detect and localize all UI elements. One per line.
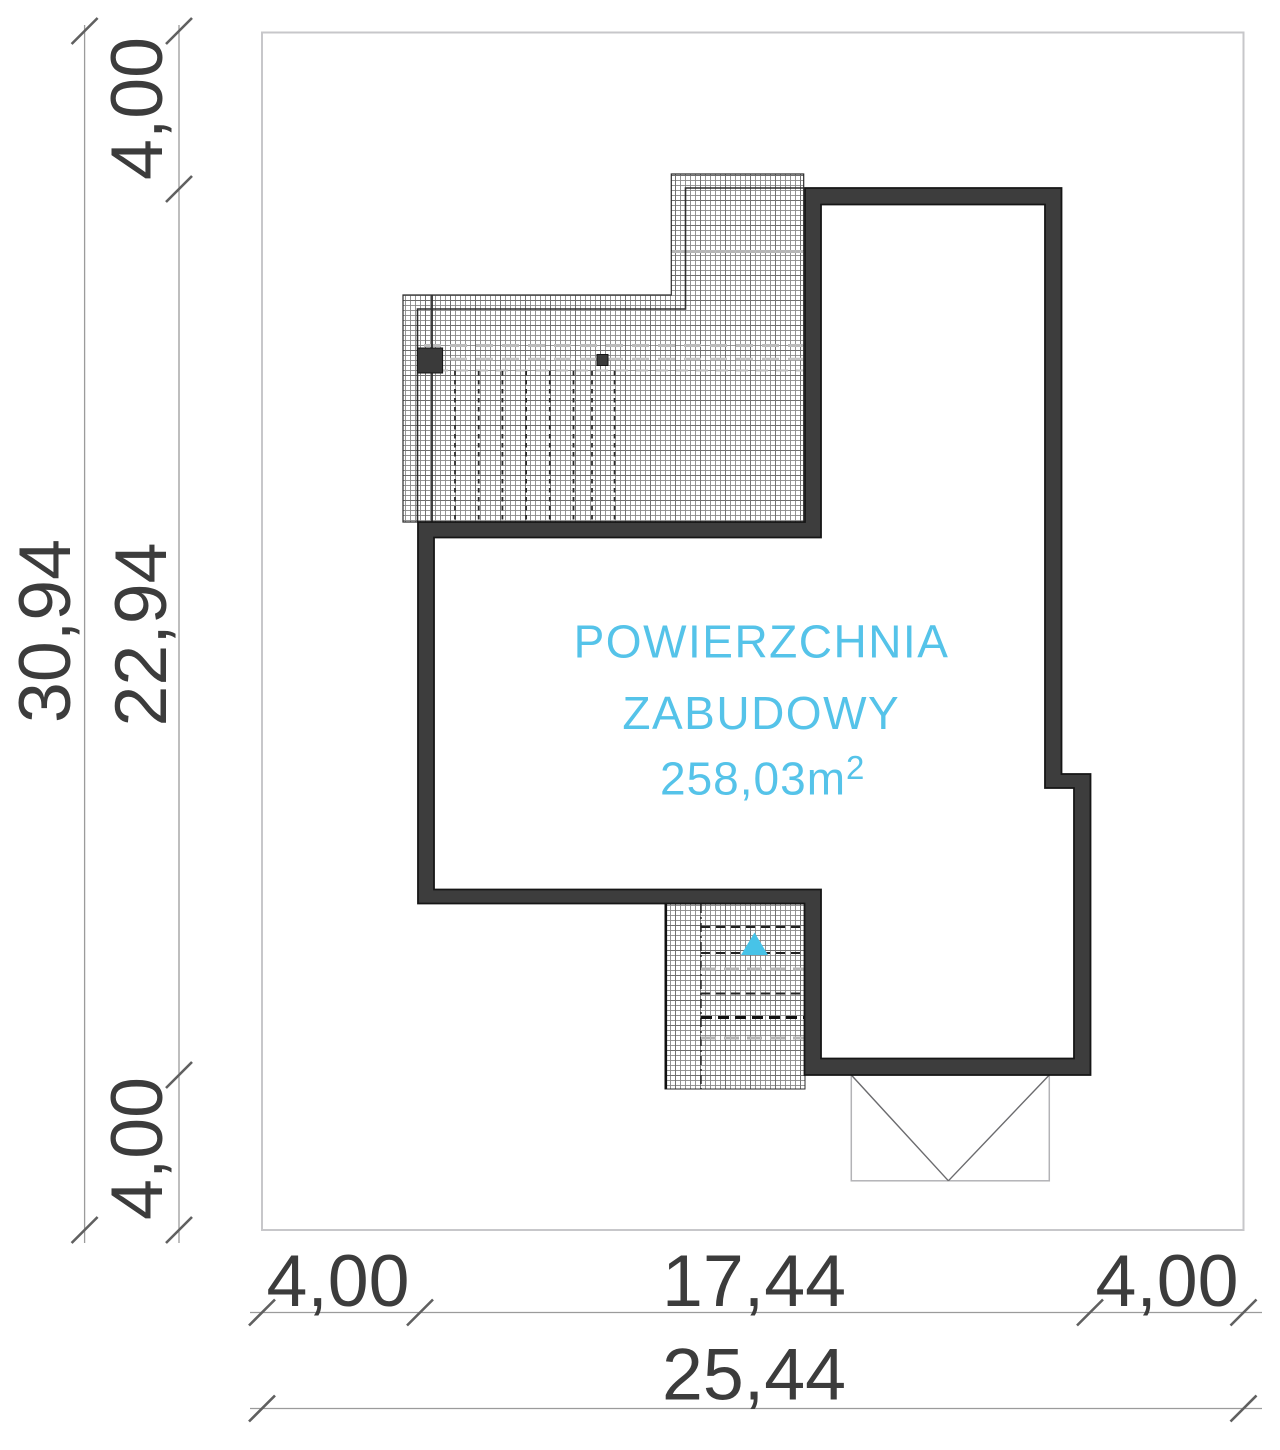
svg-text:22,94: 22,94 — [99, 543, 182, 727]
svg-text:4,00: 4,00 — [95, 37, 178, 180]
svg-text:4,00: 4,00 — [266, 1239, 409, 1322]
svg-text:POWIERZCHNIA: POWIERZCHNIA — [574, 616, 950, 668]
svg-text:4,00: 4,00 — [1095, 1239, 1238, 1322]
svg-text:17,44: 17,44 — [662, 1239, 846, 1322]
svg-text:25,44: 25,44 — [662, 1333, 846, 1416]
svg-text:4,00: 4,00 — [95, 1077, 178, 1220]
svg-text:258,03m2: 258,03m2 — [660, 749, 865, 805]
svg-text:30,94: 30,94 — [3, 539, 86, 723]
svg-text:ZABUDOWY: ZABUDOWY — [622, 687, 900, 739]
